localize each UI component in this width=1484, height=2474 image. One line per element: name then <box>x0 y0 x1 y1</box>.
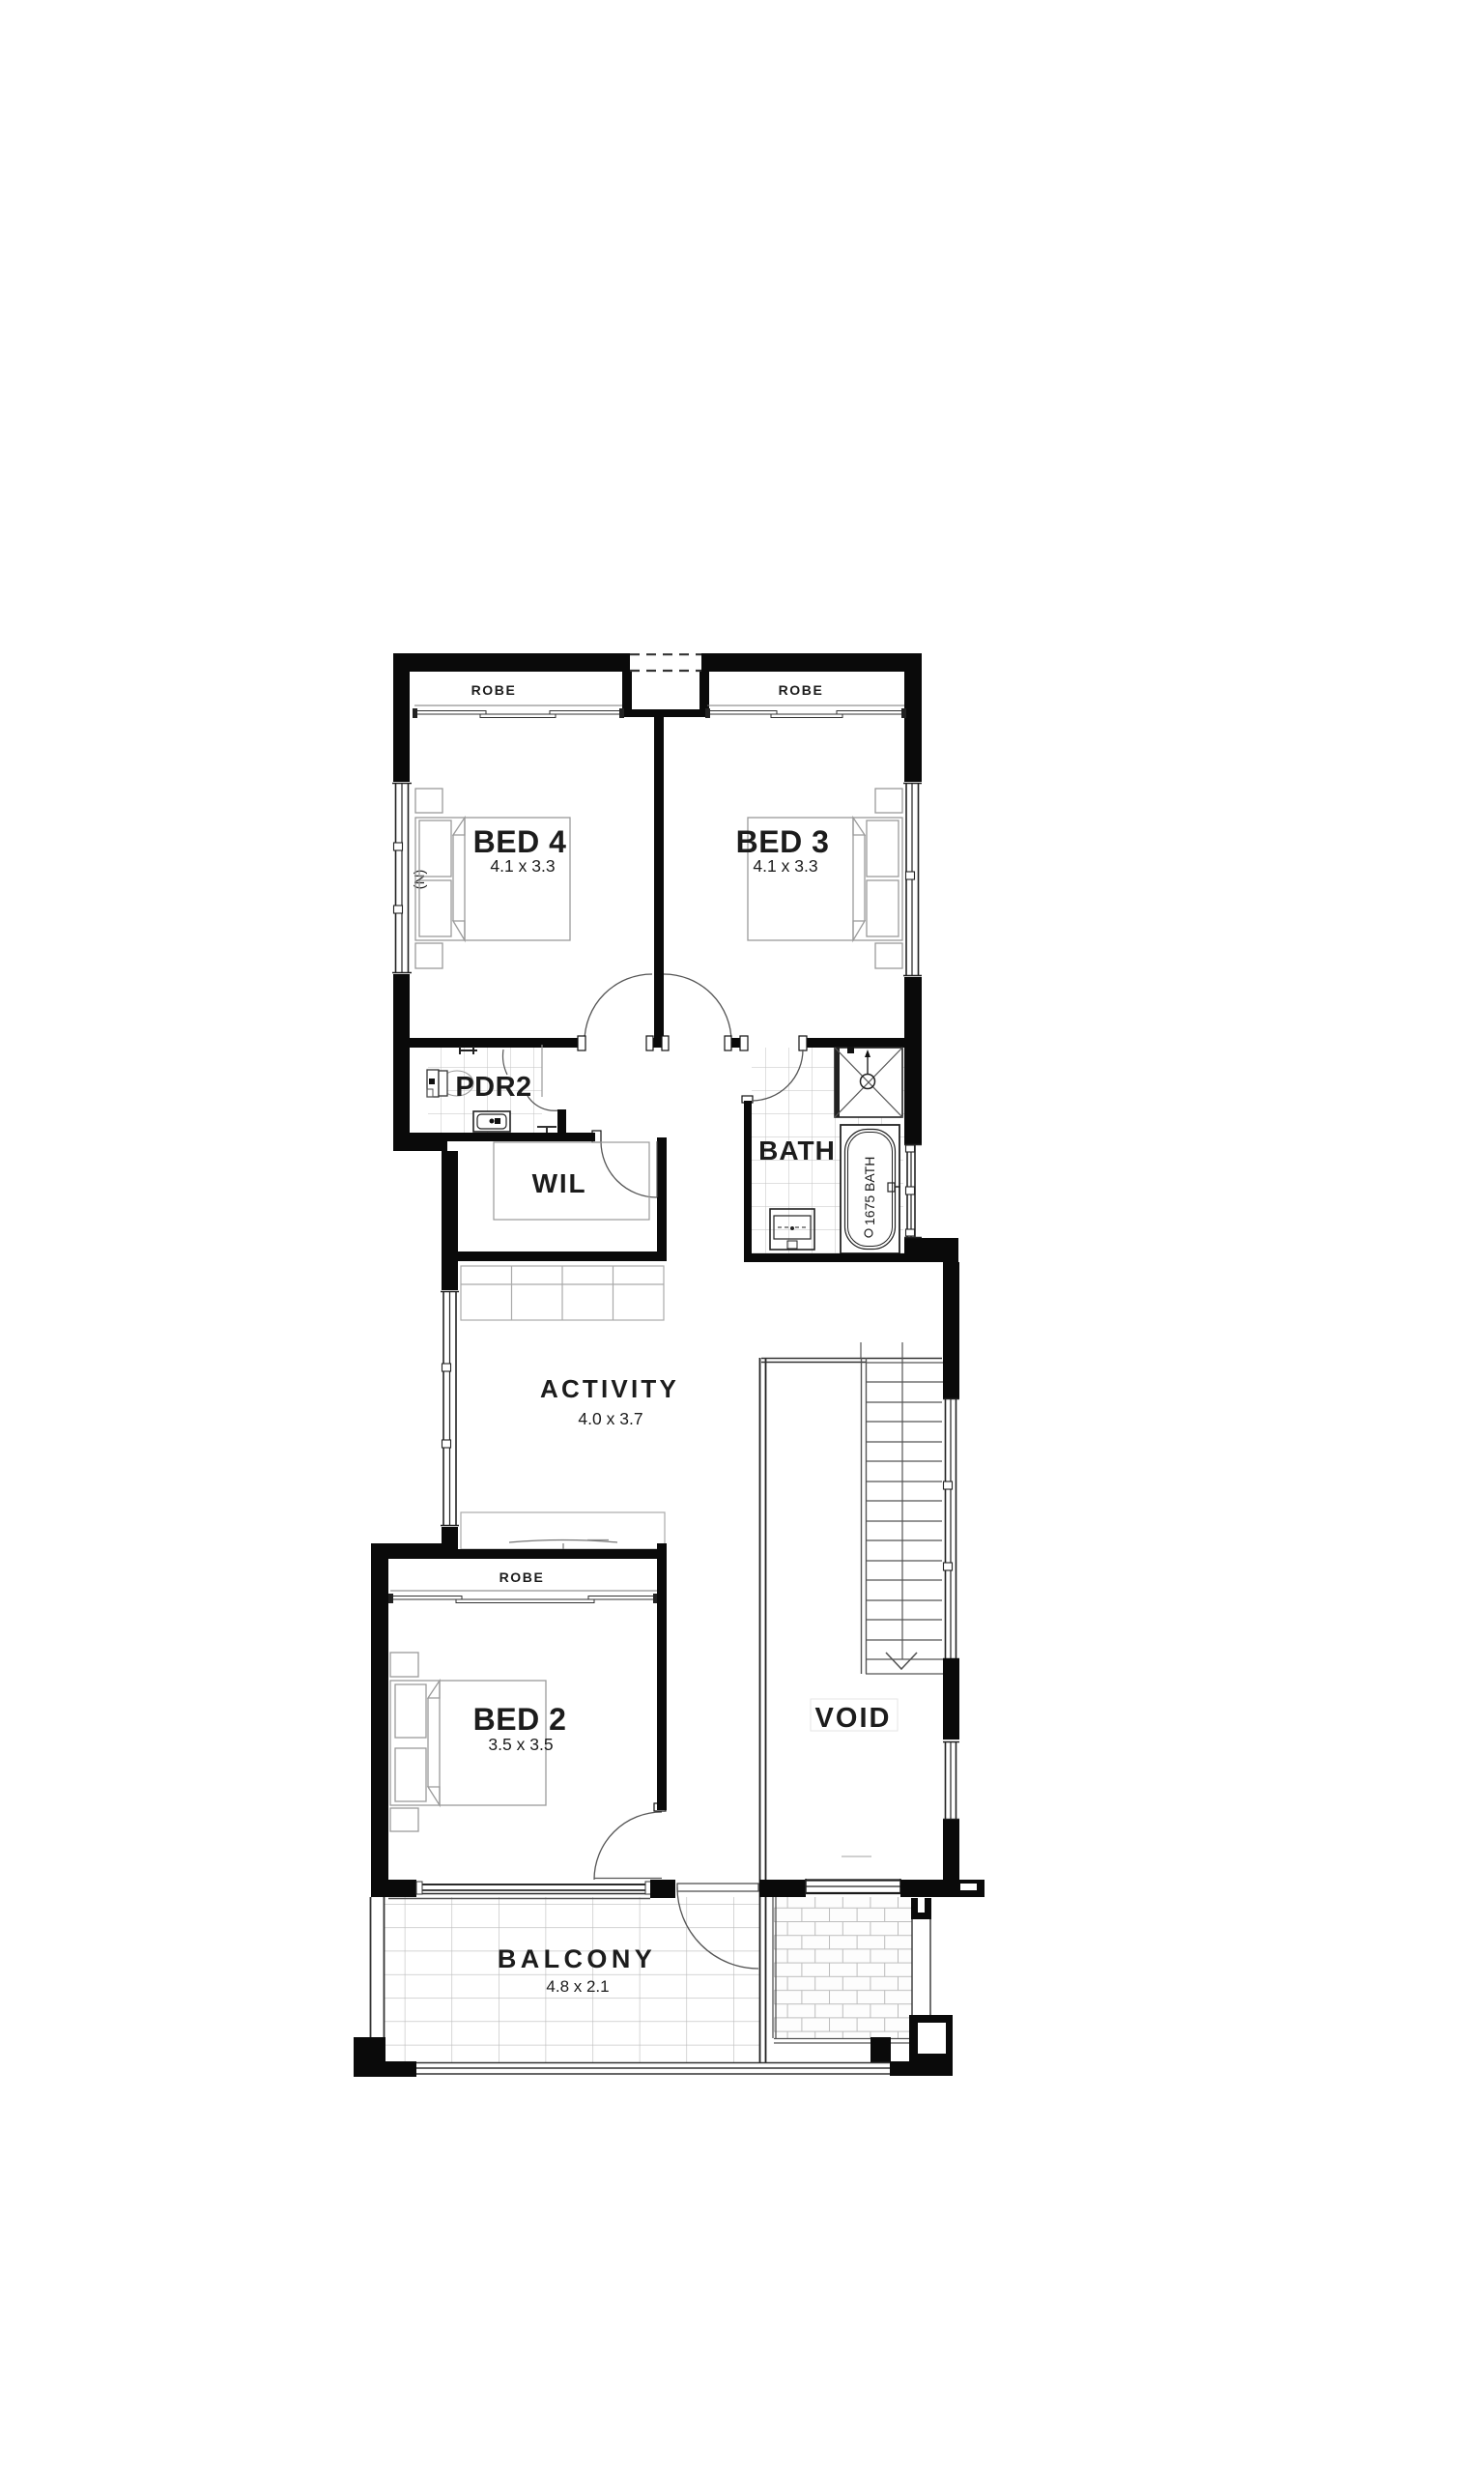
svg-text:BED 3: BED 3 <box>736 824 830 859</box>
svg-text:4.0 x 3.7: 4.0 x 3.7 <box>578 1409 642 1428</box>
svg-text:BALCONY: BALCONY <box>498 1944 656 1973</box>
svg-text:ROBE: ROBE <box>499 1569 545 1585</box>
svg-text:3.5 x 3.5: 3.5 x 3.5 <box>488 1735 553 1754</box>
svg-text:WIL: WIL <box>532 1168 587 1198</box>
svg-text:4.8 x 2.1: 4.8 x 2.1 <box>546 1977 609 1996</box>
svg-text:ACTIVITY: ACTIVITY <box>540 1374 679 1403</box>
svg-text:VOID: VOID <box>815 1703 892 1734</box>
svg-text:ROBE: ROBE <box>471 682 517 698</box>
svg-text:PDR2: PDR2 <box>455 1072 531 1103</box>
svg-text:4.1 x 3.3: 4.1 x 3.3 <box>753 856 817 876</box>
svg-text:4.1 x 3.3: 4.1 x 3.3 <box>490 856 555 876</box>
svg-text:BED 4: BED 4 <box>473 824 567 859</box>
svg-text:1675 BATH: 1675 BATH <box>862 1157 877 1225</box>
svg-text:BATH: BATH <box>758 1136 836 1165</box>
svg-text:ROBE: ROBE <box>779 682 824 698</box>
svg-text:BED 2: BED 2 <box>473 1702 567 1737</box>
